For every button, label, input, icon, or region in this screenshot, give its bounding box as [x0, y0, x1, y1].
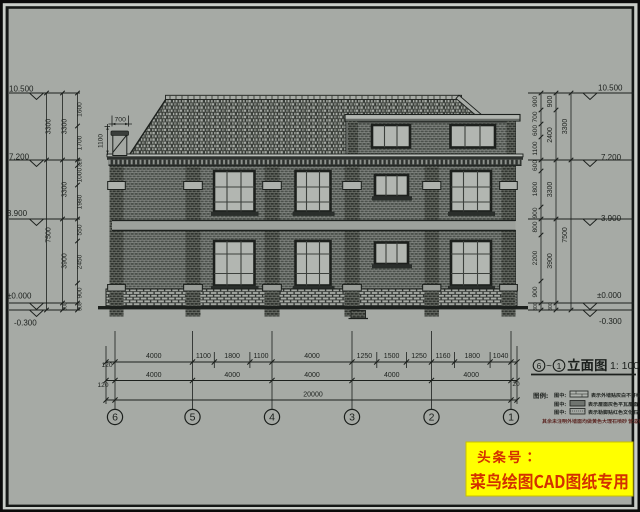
svg-text:120: 120 [97, 382, 108, 389]
svg-text:±0.000: ±0.000 [7, 292, 32, 301]
svg-text:7500: 7500 [46, 227, 53, 243]
svg-text:7.200: 7.200 [9, 153, 30, 162]
svg-text:5: 5 [190, 412, 196, 424]
svg-text:120: 120 [101, 362, 112, 369]
svg-text:7.200: 7.200 [601, 153, 622, 162]
svg-text:1: 1 [557, 361, 562, 371]
svg-text:20: 20 [512, 381, 520, 388]
svg-text:3: 3 [349, 412, 355, 424]
svg-text:6: 6 [537, 361, 542, 371]
svg-text:320: 320 [78, 158, 84, 167]
svg-text:2450: 2450 [77, 254, 84, 269]
svg-text:550: 550 [77, 224, 84, 235]
svg-text:±0.000: ±0.000 [597, 291, 622, 300]
svg-text:900: 900 [77, 287, 84, 298]
svg-text:2200: 2200 [532, 250, 539, 265]
svg-text:1800: 1800 [532, 181, 539, 196]
svg-text:300: 300 [78, 302, 84, 311]
svg-text:1: 1 [508, 412, 514, 424]
svg-text:1980: 1980 [77, 194, 84, 209]
svg-text:1000: 1000 [77, 168, 84, 183]
svg-text:800: 800 [532, 221, 539, 232]
svg-text:4000: 4000 [463, 372, 479, 379]
svg-text:300: 300 [533, 302, 539, 311]
svg-text:3900: 3900 [62, 253, 69, 269]
svg-text:1100: 1100 [98, 134, 105, 148]
svg-text:1100: 1100 [196, 353, 211, 360]
svg-text:1500: 1500 [384, 353, 400, 360]
svg-text:1040: 1040 [493, 353, 509, 360]
svg-text:1800: 1800 [224, 353, 240, 360]
svg-text:300: 300 [548, 302, 554, 311]
svg-text:300: 300 [63, 302, 69, 311]
svg-text:4000: 4000 [304, 353, 320, 360]
svg-text:3300: 3300 [562, 119, 569, 135]
svg-text:4000: 4000 [224, 372, 240, 379]
svg-text:3300: 3300 [62, 119, 69, 135]
svg-text:1600: 1600 [77, 102, 84, 117]
svg-text:1100: 1100 [253, 353, 268, 360]
svg-text:4000: 4000 [146, 372, 162, 379]
svg-text:900: 900 [547, 96, 554, 108]
svg-text:-0.300: -0.300 [599, 317, 622, 326]
svg-text:2400: 2400 [547, 127, 554, 143]
svg-text:700: 700 [115, 117, 127, 124]
svg-text:700: 700 [532, 111, 539, 122]
svg-text:3.900: 3.900 [601, 214, 622, 223]
svg-text:1250: 1250 [411, 353, 427, 360]
svg-text:2: 2 [429, 412, 435, 424]
svg-text:-0.300: -0.300 [14, 319, 37, 328]
svg-text:6: 6 [112, 412, 118, 424]
svg-text:1700: 1700 [77, 135, 84, 150]
svg-text:1800: 1800 [465, 353, 481, 360]
svg-text:7500: 7500 [562, 227, 569, 243]
svg-text:20000: 20000 [303, 392, 323, 399]
svg-text:4000: 4000 [304, 372, 320, 379]
svg-text:1250: 1250 [357, 353, 373, 360]
svg-text:900: 900 [532, 286, 539, 297]
svg-text:10.500: 10.500 [9, 85, 34, 94]
svg-text:4: 4 [269, 412, 275, 424]
svg-text:1160: 1160 [435, 353, 450, 360]
svg-text:4000: 4000 [384, 372, 400, 379]
svg-text:600: 600 [532, 160, 539, 171]
svg-text:4000: 4000 [146, 353, 162, 360]
svg-text:3.900: 3.900 [7, 209, 28, 218]
svg-text:900: 900 [532, 207, 539, 218]
svg-text:3300: 3300 [46, 119, 53, 135]
svg-text:3300: 3300 [547, 182, 554, 198]
svg-text:600: 600 [532, 125, 539, 136]
svg-text:1100: 1100 [532, 141, 539, 156]
svg-text:900: 900 [532, 96, 539, 107]
svg-text:~: ~ [546, 361, 552, 372]
svg-text:10.500: 10.500 [598, 84, 623, 93]
svg-text:1: 100: 1: 100 [610, 360, 639, 372]
svg-text:3300: 3300 [62, 182, 69, 198]
svg-text:3900: 3900 [547, 253, 554, 269]
